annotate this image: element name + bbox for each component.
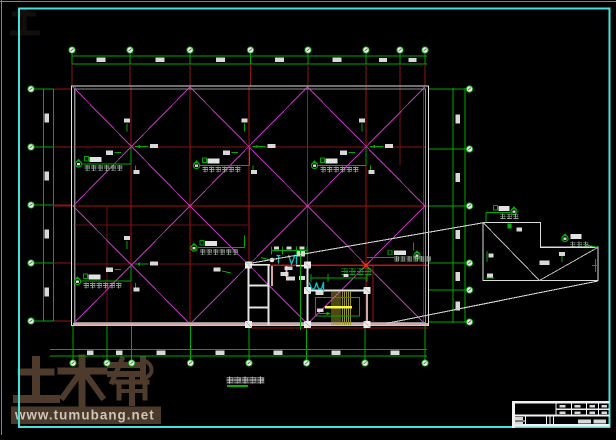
svg-text:www.tumubang.net: www.tumubang.net xyxy=(14,408,155,423)
